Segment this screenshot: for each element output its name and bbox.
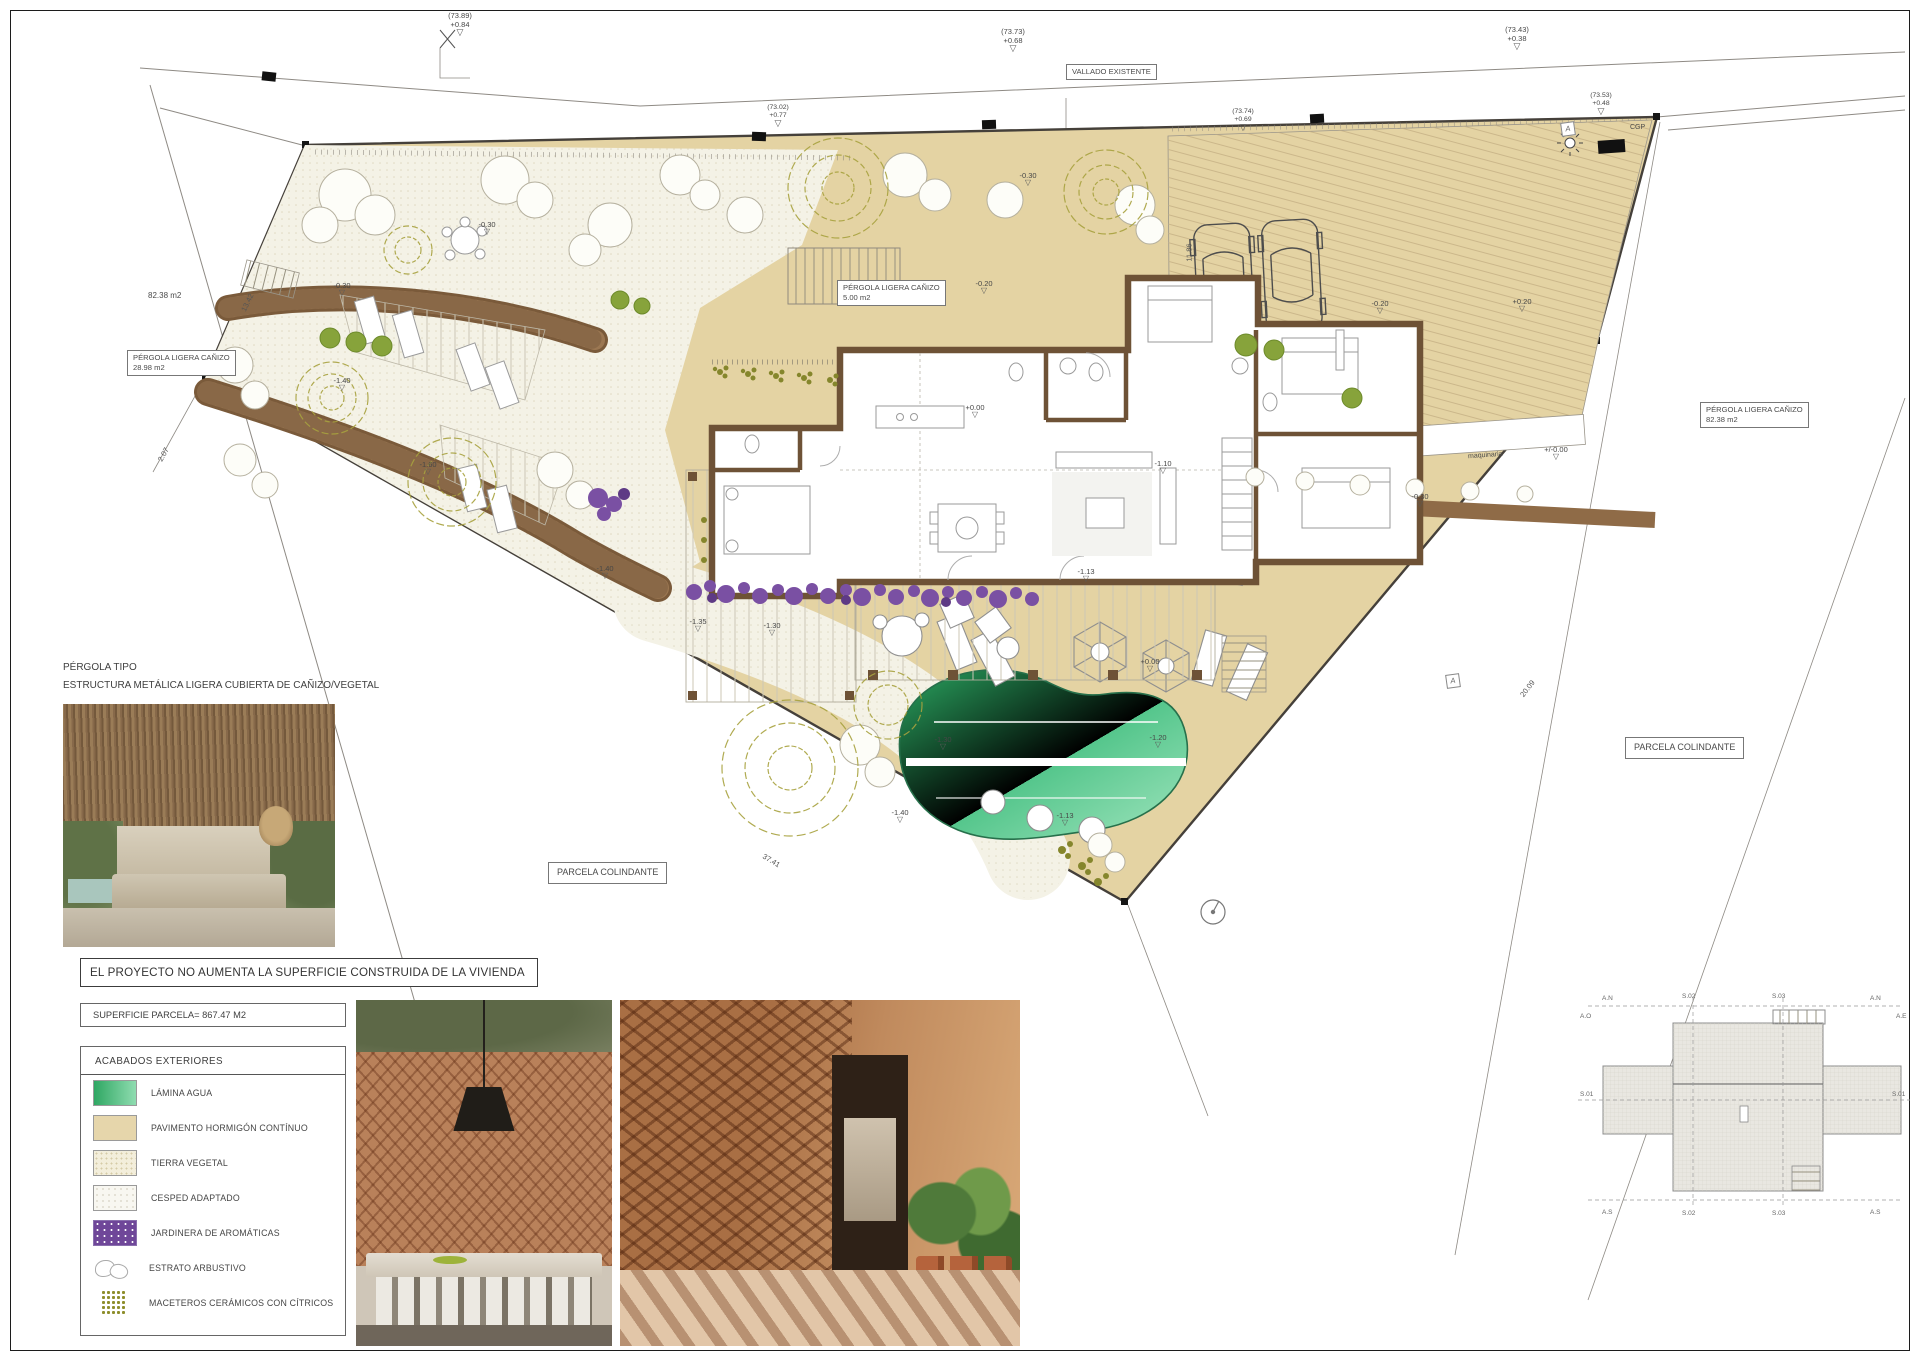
pergola-type-note: PÉRGOLA TIPO ESTRUCTURA METÁLICA LIGERA … xyxy=(63,659,379,695)
dimension-label: 11.86 xyxy=(1185,243,1194,261)
svg-text:A.O: A.O xyxy=(1580,1013,1591,1020)
neighbor-area-label: 82.38 m2 xyxy=(148,292,181,301)
svg-text:S.01: S.01 xyxy=(1580,1091,1594,1098)
planter-swatch-icon xyxy=(93,1220,137,1246)
level-marker: -1.30 xyxy=(934,736,951,750)
svg-text:S.03: S.03 xyxy=(1772,993,1786,1000)
level-marker: +0.00 xyxy=(1141,658,1160,672)
grass-swatch-icon xyxy=(93,1185,137,1211)
photo-pergola-roof xyxy=(63,704,335,831)
svg-text:S.03: S.03 xyxy=(1772,1210,1786,1216)
project-statement-box: EL PROYECTO NO AUMENTA LA SUPERFICIE CON… xyxy=(80,958,538,987)
terrace-stairs xyxy=(1222,636,1266,692)
spot-elevation: (73.74)+0.69 xyxy=(1232,108,1254,131)
spot-elevation: (73.53)+0.48 xyxy=(1590,92,1612,115)
legend-box: ACABADOS EXTERIORES LÁMINA AGUA PAVIMENT… xyxy=(80,1046,346,1336)
triangle-down-icon xyxy=(1590,108,1612,115)
spot-elevation: (73.43)+0.38 xyxy=(1505,26,1529,50)
legend-item-pavement: PAVIMENTO HORMIGÓN CONTÍNUO xyxy=(81,1110,345,1145)
section-marker-a: A xyxy=(1560,121,1576,137)
photo-pergola-wall xyxy=(117,826,269,879)
svg-text:S.01: S.01 xyxy=(1892,1091,1906,1098)
photo2-plate xyxy=(433,1256,467,1264)
triangle-down-icon xyxy=(1505,43,1529,50)
spot-elevation: (73.02)+0.77 xyxy=(767,104,789,127)
legend-item-shrub: ESTRATO ARBUSTIVO xyxy=(81,1250,345,1285)
adjacent-parcel-label: PARCELA COLINDANTE xyxy=(1625,737,1744,759)
photo-celosia-hall xyxy=(620,1000,1020,1346)
level-marker: -1.40 xyxy=(891,809,908,823)
roof-plan-inset: A.N A.N A.O A.E A.S A.S S.01 S.01 S.02 S… xyxy=(1578,988,1910,1216)
photo-lattice-patio xyxy=(356,1000,612,1346)
photo2-lamp-cord xyxy=(483,1000,485,1090)
svg-text:A.N: A.N xyxy=(1602,995,1613,1002)
level-marker: -1.60 xyxy=(419,461,436,475)
legend-item-water: LÁMINA AGUA xyxy=(81,1075,345,1110)
level-marker: -1.35 xyxy=(689,618,706,632)
level-marker: -0.30 xyxy=(1019,172,1036,186)
pavement-swatch-icon xyxy=(93,1115,137,1141)
citrus-swatch-icon xyxy=(101,1290,127,1316)
photo2-floor xyxy=(356,1325,612,1346)
photo2-chairs xyxy=(376,1277,591,1325)
soil-swatch-icon xyxy=(93,1150,137,1176)
photo2-table xyxy=(366,1253,602,1277)
level-marker: -1.20 xyxy=(1149,734,1166,748)
triangle-down-icon xyxy=(448,29,472,36)
spot-elevation: (73.73)+0.68 xyxy=(1001,28,1025,52)
cgp-box xyxy=(1598,139,1626,154)
level-marker: -0.20 xyxy=(1371,300,1388,314)
photo3-floor-shadows xyxy=(620,1270,1020,1346)
legend-item-planter: JARDINERA DE AROMÁTICAS xyxy=(81,1215,345,1250)
photo-pergola-type xyxy=(63,704,335,947)
legend-item-grass: CESPED ADAPTADO xyxy=(81,1180,345,1215)
svg-text:A.S: A.S xyxy=(1870,1209,1881,1216)
level-marker: +0.20 xyxy=(1513,298,1532,312)
photo-pergola-floor xyxy=(63,908,335,947)
spot-elevation: (73.89)+0.84 xyxy=(448,12,472,36)
level-marker: -0.20 xyxy=(975,280,992,294)
level-marker: -1.13 xyxy=(1056,812,1073,826)
pergola-label-box: PÉRGOLA LIGERA CAÑIZO28.98 m2 xyxy=(127,350,236,376)
level-marker: -0.30 xyxy=(478,221,495,235)
shrub-swatch-icon xyxy=(93,1256,135,1280)
level-marker: -1.40 xyxy=(596,565,613,579)
svg-text:A.E: A.E xyxy=(1896,1013,1907,1020)
north-compass-icon xyxy=(1201,900,1225,924)
legend-item-citrus: MACETEROS CERÁMICOS CON CÍTRICOS xyxy=(81,1285,345,1320)
cgp-label: CGP xyxy=(1630,124,1645,132)
legend-title: ACABADOS EXTERIORES xyxy=(81,1047,345,1075)
level-marker: +0.00 xyxy=(966,404,985,418)
triangle-down-icon xyxy=(1001,45,1025,52)
svg-text:S.02: S.02 xyxy=(1682,1210,1696,1216)
svg-text:A.S: A.S xyxy=(1602,1209,1613,1216)
triangle-down-icon xyxy=(767,120,789,127)
fence-label-box: VALLADO EXISTENTE xyxy=(1066,64,1157,80)
svg-text:S.02: S.02 xyxy=(1682,993,1696,1000)
level-marker: -1.30 xyxy=(763,622,780,636)
photo3-celosia-texture xyxy=(620,1000,852,1270)
triangle-down-icon xyxy=(1232,124,1254,131)
level-marker: -1.13 xyxy=(1077,568,1094,582)
water-swatch-icon xyxy=(93,1080,137,1106)
legend-item-soil: TIERRA VEGETAL xyxy=(81,1145,345,1180)
section-marker-a: A xyxy=(1445,673,1461,689)
photo3-door-glow xyxy=(844,1118,896,1222)
pergola-label-box: PÉRGOLA LIGERA CAÑIZO82.38 m2 xyxy=(1700,402,1809,428)
adjacent-parcel-label: PARCELA COLINDANTE xyxy=(548,862,667,884)
level-marker: +/-0.00 xyxy=(1544,446,1568,460)
pergola-label-box: PÉRGOLA LIGERA CAÑIZO5.00 m2 xyxy=(837,280,946,306)
plot-area-box: SUPERFICIE PARCELA= 867.47 M2 xyxy=(80,1003,346,1027)
level-marker: -1.40 xyxy=(333,377,350,391)
photo-pergola-lamp xyxy=(259,806,293,846)
svg-text:A.N: A.N xyxy=(1870,995,1881,1002)
level-marker: -1.10 xyxy=(1154,460,1171,474)
level-marker: -0.30 xyxy=(333,282,350,296)
level-marker: -0.30 xyxy=(1411,493,1428,507)
drawing-sheet: (73.89)+0.84 (73.73)+0.68 (73.43)+0.38 (… xyxy=(0,0,1920,1361)
